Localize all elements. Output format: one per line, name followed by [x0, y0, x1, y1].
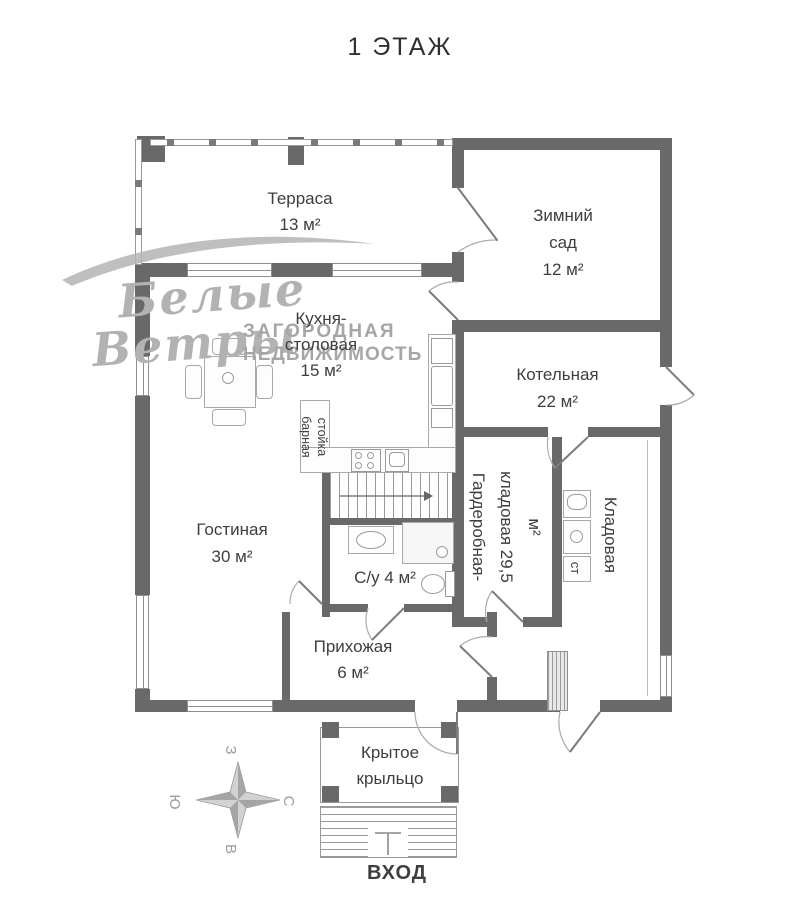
- railing-post: [209, 139, 216, 146]
- railing-post: [311, 139, 318, 146]
- fridge: [431, 366, 453, 406]
- room-label-kitchen: Кухня- столовая 15 м²: [261, 306, 381, 384]
- room-area: 15 м²: [261, 358, 381, 384]
- shower-drain: [436, 546, 448, 558]
- wall-hall-right-b: [487, 677, 497, 702]
- room-area: 6 м²: [293, 660, 413, 686]
- porch-post: [441, 722, 458, 738]
- door-terrace-wintergarden: [458, 188, 497, 252]
- room-name: Крытое: [330, 740, 450, 766]
- bar-label-line: барная: [298, 401, 314, 473]
- wall-wardrobe-right: [552, 437, 562, 627]
- entrance-label: ВХОД: [340, 860, 454, 886]
- door-boiler-exterior: [666, 367, 694, 405]
- compass-rose: [196, 762, 280, 838]
- wall-right-upper: [660, 150, 672, 367]
- room-area: 13 м²: [240, 212, 360, 238]
- railing-post: [251, 139, 258, 146]
- door-kitchen-wintergarden: [429, 282, 458, 320]
- room-area: м²: [520, 427, 548, 627]
- wall-right-middle: [660, 405, 672, 655]
- railing-terrace-left: [135, 139, 142, 265]
- room-label-boiler: Котельная 22 м²: [495, 361, 620, 415]
- room-name: Терраса: [240, 186, 360, 212]
- room-area: 22 м²: [495, 388, 620, 415]
- room-name: Зимний: [513, 202, 613, 229]
- window-left-2: [136, 595, 149, 689]
- shower: [402, 522, 454, 564]
- wall-boiler-top: [452, 320, 662, 332]
- railing-post: [353, 139, 360, 146]
- bath-sink-bowl: [356, 531, 386, 549]
- room-name: Гостиная: [172, 516, 292, 543]
- chair: [212, 409, 246, 426]
- porch-post: [322, 722, 339, 738]
- railing-terrace-top: [150, 139, 453, 146]
- wall-bottom-a: [135, 700, 187, 712]
- pantry-wall-line: [647, 440, 648, 696]
- room-label-terrace: Терраса 13 м²: [240, 186, 360, 238]
- room-label-pantry: Кладовая: [598, 485, 622, 585]
- room-name: кладовая 29,5: [492, 427, 520, 627]
- room-area: 30 м²: [172, 543, 292, 570]
- railing-post: [167, 139, 174, 146]
- window-bottom: [187, 700, 273, 712]
- burner: [367, 462, 374, 469]
- wall-bathroom-bottom-a: [330, 604, 368, 612]
- window-right-pantry: [660, 655, 672, 697]
- room-label-bathroom: С/у 4 м²: [340, 565, 430, 591]
- pantry-shelf: [547, 651, 568, 711]
- door-hallway-pantry: [460, 637, 492, 677]
- room-name: Гардеробная-: [464, 427, 492, 627]
- window-terrace-2: [332, 263, 422, 277]
- room-label-living: Гостиная 30 м²: [172, 516, 292, 570]
- railing-post: [395, 139, 402, 146]
- room-label-hallway: Прихожая 6 м²: [293, 634, 413, 686]
- compass-east: В: [222, 841, 238, 857]
- plate: [222, 372, 234, 384]
- room-name: сад: [513, 229, 613, 256]
- railing-post: [135, 228, 142, 235]
- wall-bottom-b: [273, 700, 415, 712]
- wall-wintergarden-top: [452, 138, 672, 150]
- toilet-tank: [445, 571, 455, 597]
- wall-hall-left: [282, 612, 290, 702]
- burner: [367, 452, 374, 459]
- railing-post: [437, 139, 444, 146]
- wall-terrace-bottom-c: [422, 263, 456, 277]
- wall-wintergarden-left-a: [452, 150, 464, 188]
- wall-left-middle: [135, 396, 150, 595]
- room-area: 12 м²: [513, 256, 613, 283]
- laundry-sink-bowl: [567, 494, 587, 510]
- bar-counter-label: стойка барная: [298, 401, 330, 473]
- room-label-winter-garden: Зимний сад 12 м²: [513, 202, 613, 283]
- room-name: крыльцо: [330, 766, 450, 792]
- washing-machine-label: ст: [567, 555, 583, 581]
- washer-door: [570, 530, 583, 543]
- railing-post: [135, 180, 142, 187]
- steps-notch: [368, 824, 408, 857]
- cabinet-top: [431, 338, 453, 364]
- room-name: Котельная: [495, 361, 620, 388]
- wall-wardrobe-top-b: [588, 427, 662, 437]
- compass-north: С: [280, 793, 296, 809]
- wall-bottom-c: [457, 700, 560, 712]
- door-pantry-exterior: [559, 712, 600, 752]
- bar-label-line: стойка: [314, 401, 330, 473]
- floor-plan: Белые Ветры ЗАГОРОДНАЯ НЕДВИЖИМОСТЬ 1 ЭТ…: [0, 0, 800, 900]
- wall-bathroom-bottom-b: [404, 604, 460, 612]
- compass-west: З: [222, 742, 238, 758]
- room-name: Кухня-: [261, 306, 381, 332]
- burner: [355, 452, 362, 459]
- wall-bottom-d: [600, 700, 672, 712]
- room-name: столовая: [261, 332, 381, 358]
- room-name: Прихожая: [293, 634, 413, 660]
- staircase: [330, 472, 452, 518]
- room-label-wardrobe: м² кладовая 29,5 Гардеробная-: [464, 427, 548, 627]
- compass-south: Ю: [166, 794, 182, 810]
- page-title: 1 ЭТАЖ: [300, 33, 500, 62]
- door-living-hallway: [290, 581, 322, 604]
- kitchen-sink-bowl: [389, 452, 405, 467]
- burner: [355, 462, 362, 469]
- room-label-porch: Крытое крыльцо: [330, 740, 450, 792]
- cabinet-low: [431, 408, 453, 428]
